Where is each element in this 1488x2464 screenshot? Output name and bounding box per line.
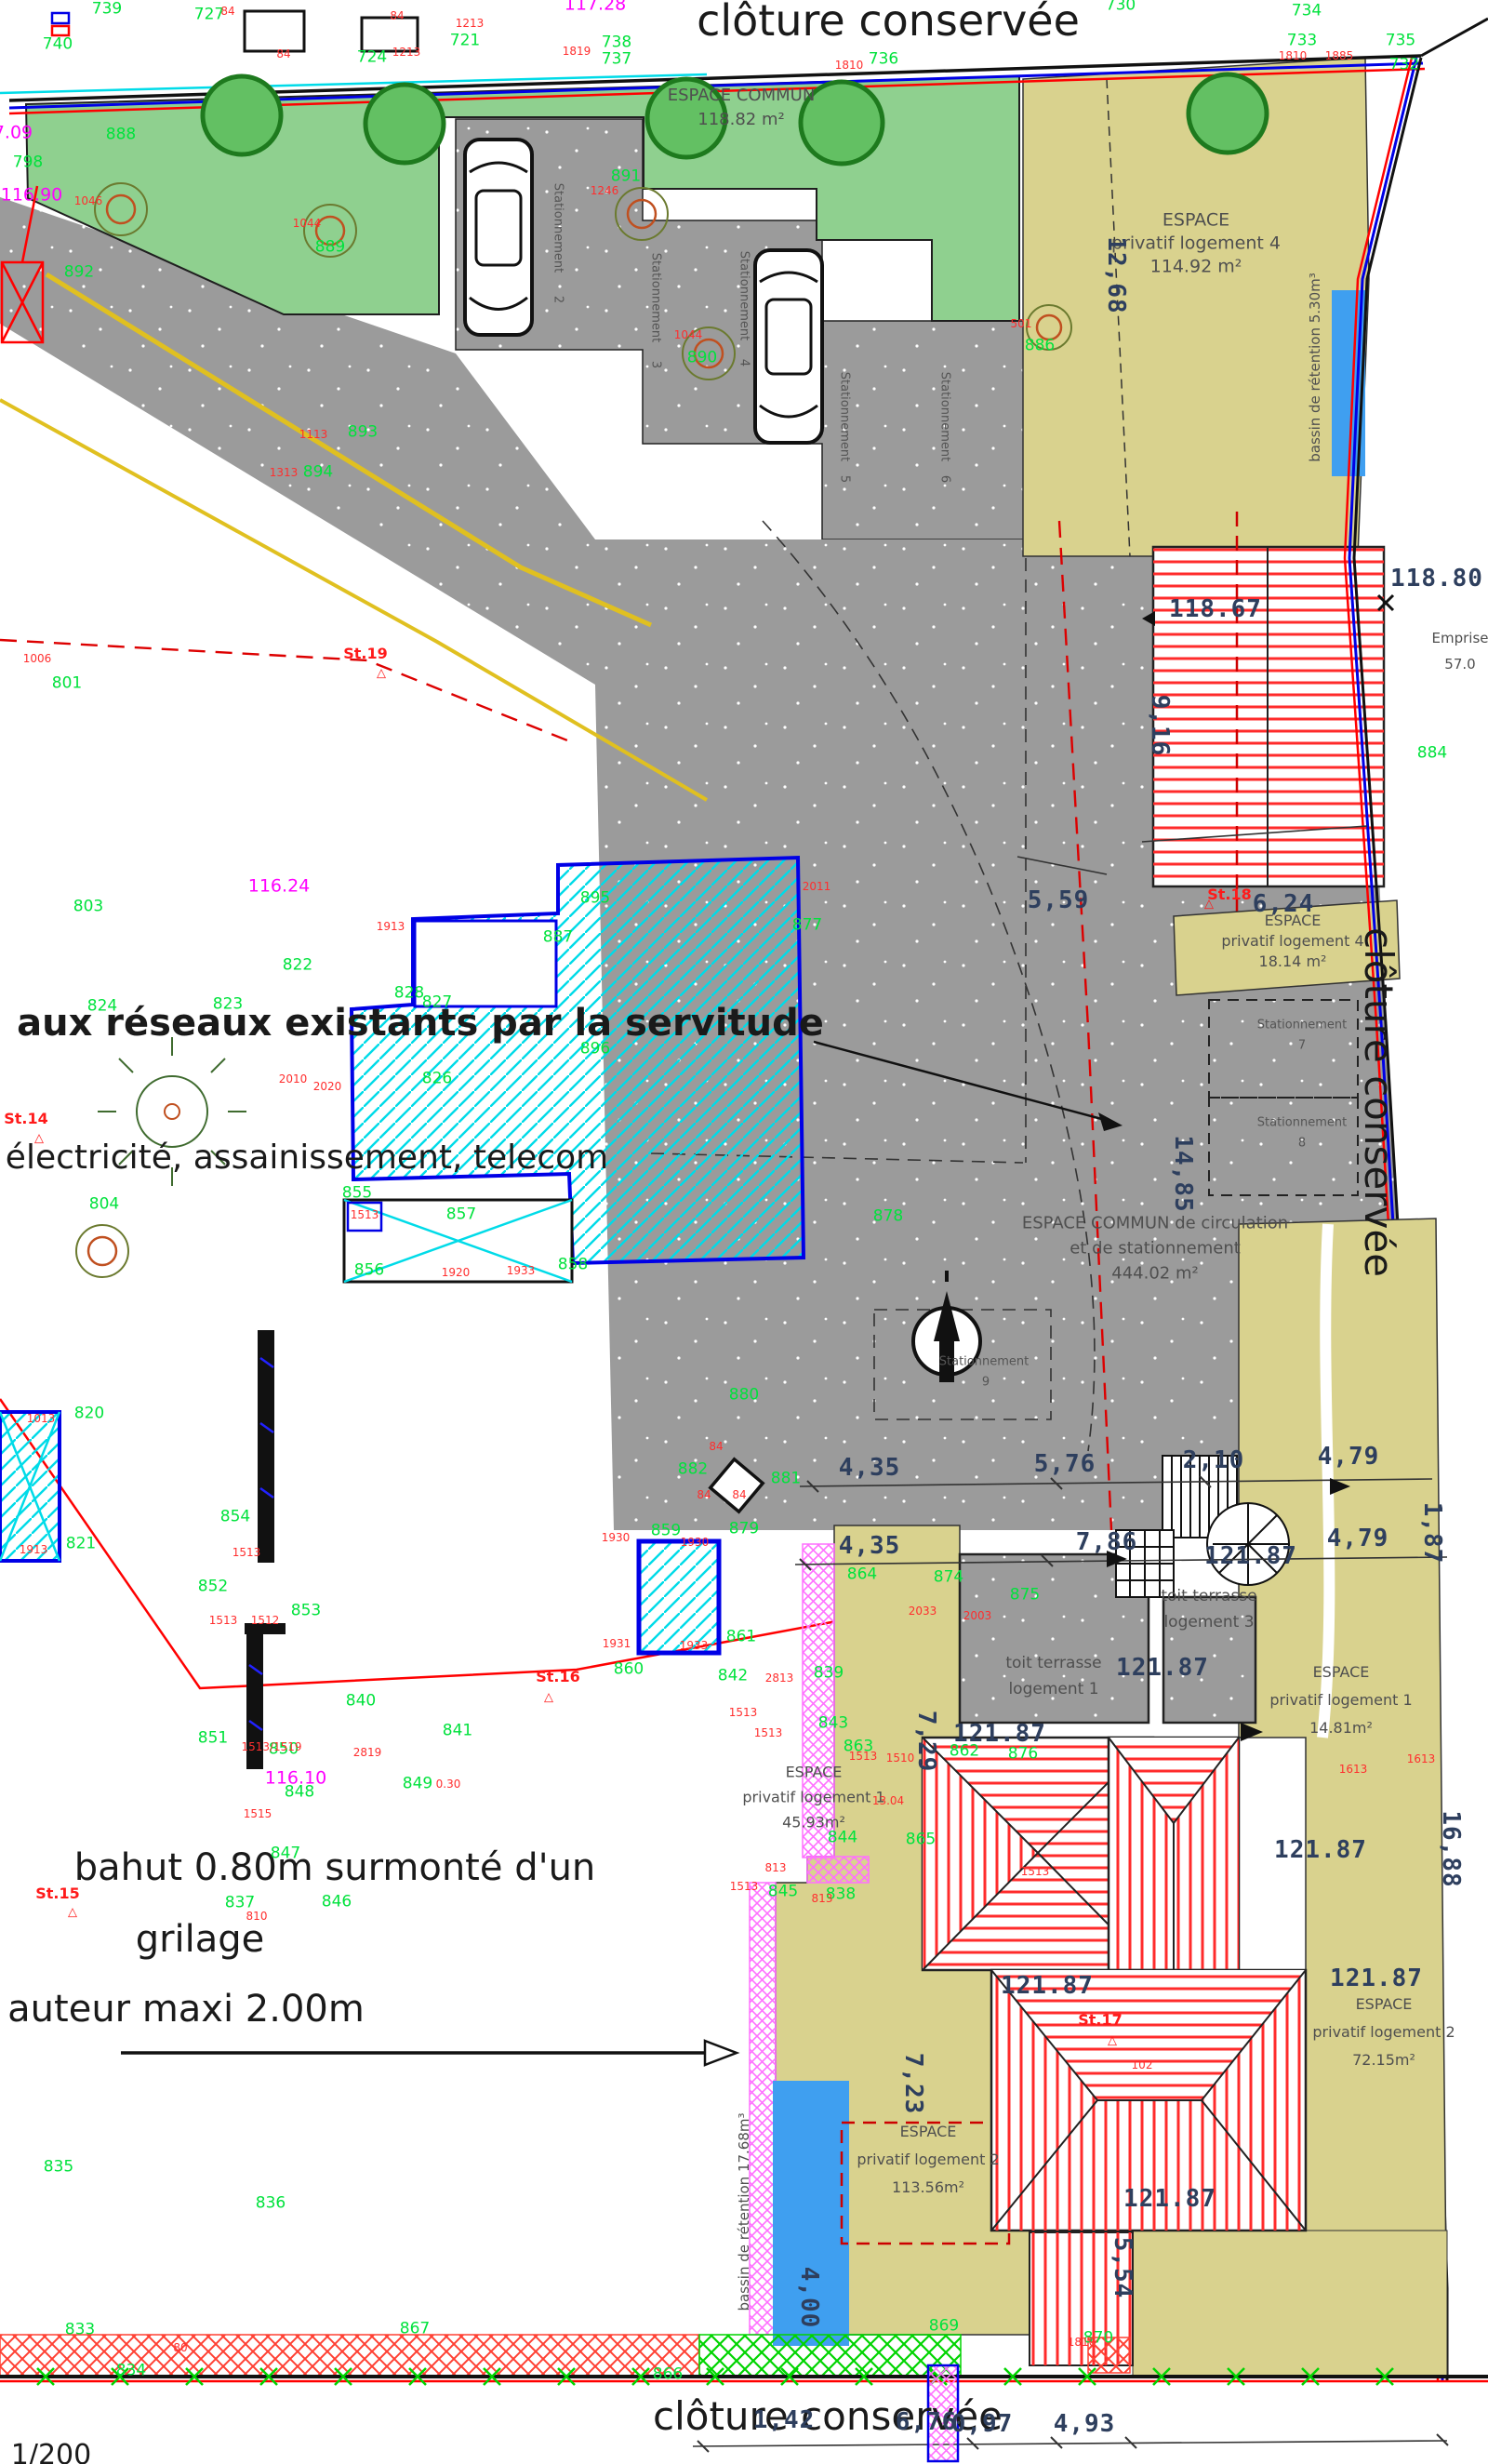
- site-plan-drawing: [0, 0, 1488, 2464]
- terrace-grid: [1116, 1530, 1174, 1597]
- roof-logement-2: [991, 1970, 1306, 2231]
- roof-logement-3: [1109, 1738, 1239, 1970]
- pool: [773, 2081, 849, 2346]
- blue-hatch-post: [928, 2365, 958, 2461]
- strip-logement-4: [1174, 900, 1400, 995]
- existing-annex: [344, 1200, 572, 1282]
- roof-bottom: [1030, 2232, 1133, 2373]
- site-plan: clôture conservéeclôture conservéeclôtur…: [0, 0, 1488, 2464]
- pink-wall: [803, 1544, 834, 1858]
